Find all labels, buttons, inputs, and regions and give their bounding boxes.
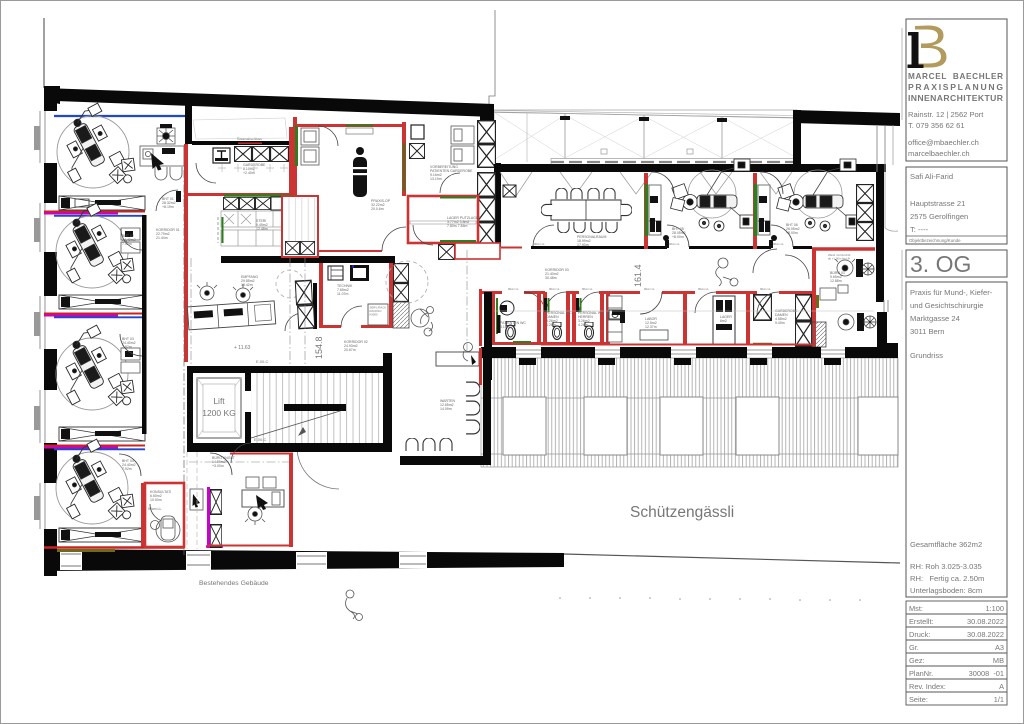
svg-text:7.92m: 7.92m <box>122 345 132 349</box>
svg-text:Seite:: Seite: <box>909 695 928 704</box>
svg-text:T: ----: T: ---- <box>910 225 929 234</box>
svg-text:30.48m: 30.48m <box>545 276 557 280</box>
svg-text:90cm LL: 90cm LL <box>148 507 161 511</box>
svg-text:Marktgasse 24: Marktgasse 24 <box>910 314 960 323</box>
svg-text:INNENARCHITEKTUR: INNENARCHITEKTUR <box>908 93 1004 103</box>
svg-text:90cm LL: 90cm LL <box>773 242 784 246</box>
svg-text:Rev. Index:: Rev. Index: <box>909 682 946 691</box>
svg-text:Erstellt:: Erstellt: <box>909 617 934 626</box>
svg-text:7.92m: 7.92m <box>122 242 132 246</box>
svg-text:1200 KG: 1200 KG <box>202 408 236 418</box>
svg-text:Unterlagsboden: 8cm: Unterlagsboden: 8cm <box>910 586 982 595</box>
svg-text:und Gesichtschirurgie: und Gesichtschirurgie <box>910 301 983 310</box>
svg-text:4.26m: 4.26m <box>578 323 588 327</box>
svg-text:12.48m: 12.48m <box>256 227 268 231</box>
svg-text:PlanNr.: PlanNr. <box>909 669 933 678</box>
svg-text:20.67m: 20.67m <box>344 348 356 352</box>
svg-text:Objektbezeichnung/Kunde: Objektbezeichnung/Kunde <box>909 238 961 243</box>
svg-text:E.00-C: E.00-C <box>254 437 267 442</box>
svg-text:30.08.2022: 30.08.2022 <box>967 630 1004 639</box>
svg-text:+2.40m: +2.40m <box>243 171 255 175</box>
svg-text:+8.00m: +8.00m <box>672 235 684 239</box>
svg-text:90cm LL: 90cm LL <box>534 242 545 246</box>
svg-text:+ 11.63: + 11.63 <box>234 345 251 351</box>
svg-text:90cm LL: 90cm LL <box>549 287 560 291</box>
svg-text:Hauptstrasse 21: Hauptstrasse 21 <box>910 199 965 208</box>
svg-text:Gr.: Gr. <box>909 643 919 652</box>
svg-text:MARCEL BAECHLER: MARCEL BAECHLER <box>908 72 1003 81</box>
svg-text:3.18m2: 3.18m2 <box>500 325 512 329</box>
svg-text:90cm LL: 90cm LL <box>508 287 519 291</box>
svg-text:30008 -01: 30008 -01 <box>969 669 1004 678</box>
svg-text:90cm LL: 90cm LL <box>760 287 771 291</box>
svg-text:marcelbaechler.ch: marcelbaechler.ch <box>908 149 970 158</box>
svg-text:6m2: 6m2 <box>720 319 727 323</box>
svg-text:RH: Fertig ca. 2.50m: RH: Fertig ca. 2.50m <box>910 574 984 583</box>
svg-text:90cm LL: 90cm LL <box>644 287 655 291</box>
svg-text:Grundriss: Grundriss <box>910 351 943 360</box>
svg-text:K9000: K9000 <box>370 313 379 317</box>
svg-text:+3.00m: +3.00m <box>212 464 224 468</box>
svg-text:1/1: 1/1 <box>994 695 1004 704</box>
svg-text:Gesamtfläche 362m2: Gesamtfläche 362m2 <box>910 540 982 549</box>
svg-text:3011 Bern: 3011 Bern <box>910 327 944 336</box>
svg-text:14.09m: 14.09m <box>440 407 452 411</box>
svg-text:Raumabschluss: Raumabschluss <box>237 137 262 141</box>
svg-text:12.37m: 12.37m <box>645 325 657 329</box>
svg-text:Mst:: Mst: <box>909 604 923 613</box>
svg-text:10.00m: 10.00m <box>150 498 162 502</box>
svg-text:MB: MB <box>993 656 1004 665</box>
svg-text:154.8: 154.8 <box>314 336 324 359</box>
svg-text:2575 Gerolfingen: 2575 Gerolfingen <box>910 212 968 221</box>
svg-text:13.19m: 13.19m <box>430 177 442 181</box>
svg-text:+8.19m: +8.19m <box>162 205 174 209</box>
svg-text:RH: Roh 3.025-3.035: RH: Roh 3.025-3.035 <box>910 562 982 571</box>
svg-text:7.80m 7.84m: 7.80m 7.84m <box>447 224 468 228</box>
svg-text:3. OG: 3. OG <box>910 251 971 277</box>
svg-text:A: A <box>999 682 1004 691</box>
svg-text:Rainstr. 12 | 2562 Port: Rainstr. 12 | 2562 Port <box>908 110 984 119</box>
svg-text:90cm LL: 90cm LL <box>582 287 593 291</box>
svg-text:Gez:: Gez: <box>909 656 925 665</box>
svg-text:90cm LL: 90cm LL <box>698 287 709 291</box>
svg-text:office@mbaechler.ch: office@mbaechler.ch <box>908 138 979 147</box>
svg-text:161.4: 161.4 <box>633 264 643 287</box>
svg-text:Lift: Lift <box>213 396 225 406</box>
svg-text:A3: A3 <box>995 643 1004 652</box>
svg-text:7.92m: 7.92m <box>122 467 132 471</box>
svg-text:E.00-C: E.00-C <box>256 359 269 364</box>
svg-text:4.26m: 4.26m <box>546 323 556 327</box>
svg-text:90cm LL: 90cm LL <box>669 242 680 246</box>
svg-text:1:100: 1:100 <box>986 604 1005 613</box>
svg-text:21.44m: 21.44m <box>156 236 168 240</box>
svg-text:20.0.6m: 20.0.6m <box>371 207 384 211</box>
svg-text:Praxis für Mund-, Kiefer-: Praxis für Mund-, Kiefer- <box>910 288 993 297</box>
svg-text:9.40m: 9.40m <box>775 321 785 325</box>
svg-text:12.88m: 12.88m <box>830 279 842 283</box>
svg-text:Druck:: Druck: <box>909 630 930 639</box>
svg-text:T. 079 356 62 61: T. 079 356 62 61 <box>908 121 965 130</box>
svg-text:Schützengässli: Schützengässli <box>630 504 734 521</box>
svg-text:Bestehendes Gebäude: Bestehendes Gebäude <box>199 580 269 587</box>
svg-text:30.08.2022: 30.08.2022 <box>967 617 1004 626</box>
svg-text:Safi Ali-Farid: Safi Ali-Farid <box>910 172 953 181</box>
svg-text:11.07m: 11.07m <box>337 292 348 296</box>
